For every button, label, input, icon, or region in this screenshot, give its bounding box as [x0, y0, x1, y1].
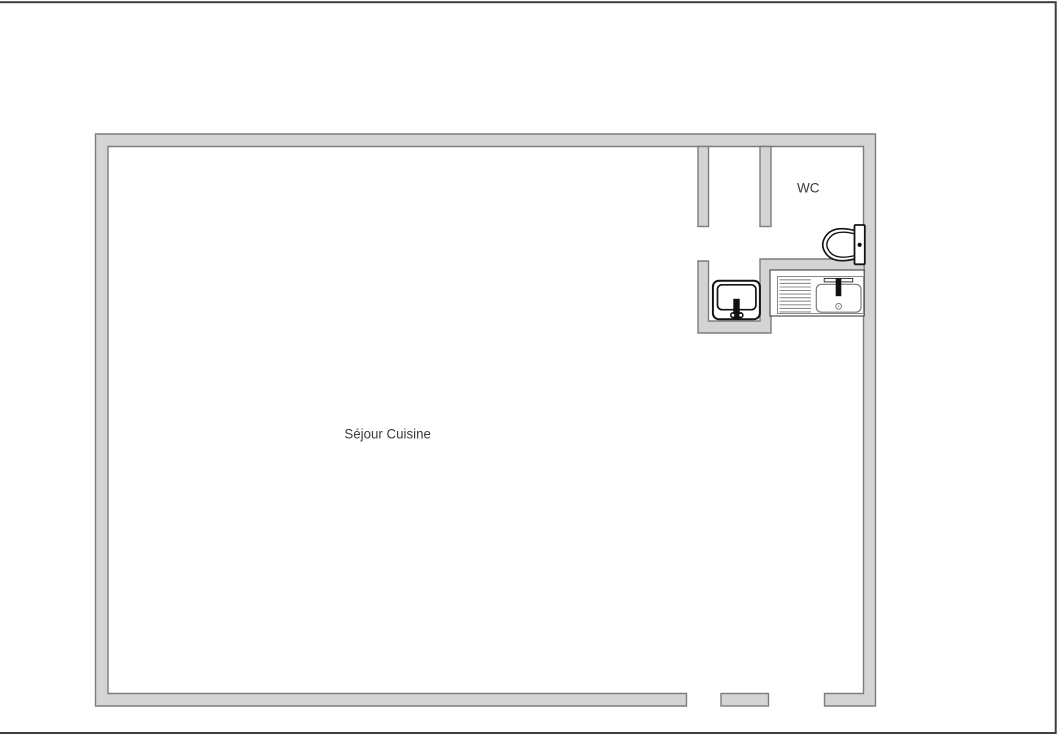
svg-text:Séjour Cuisine: Séjour Cuisine	[344, 425, 431, 441]
svg-text:WC: WC	[797, 180, 820, 196]
